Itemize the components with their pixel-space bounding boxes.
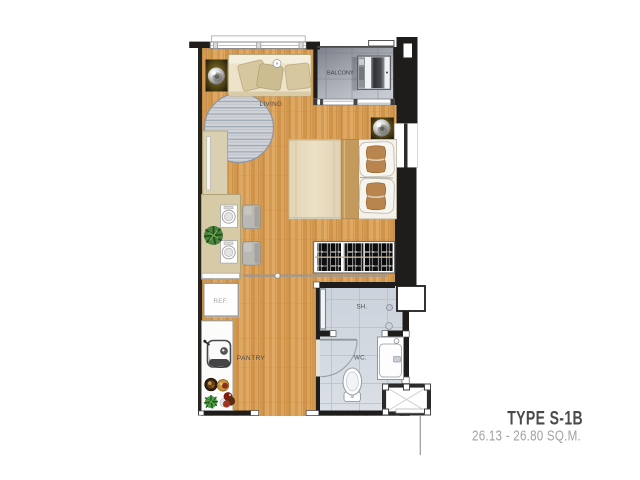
svg-text:BALCONY: BALCONY — [327, 70, 354, 76]
svg-text:PANTRY: PANTRY — [237, 355, 266, 362]
svg-text:TYPE S-1B: TYPE S-1B — [507, 407, 583, 429]
svg-text:LIVING: LIVING — [260, 101, 283, 108]
svg-text:WC.: WC. — [354, 355, 367, 362]
svg-text:REF.: REF. — [214, 298, 229, 305]
svg-text:26.13 - 26.80 SQ.M.: 26.13 - 26.80 SQ.M. — [472, 427, 581, 444]
svg-text:SH.: SH. — [357, 304, 368, 311]
